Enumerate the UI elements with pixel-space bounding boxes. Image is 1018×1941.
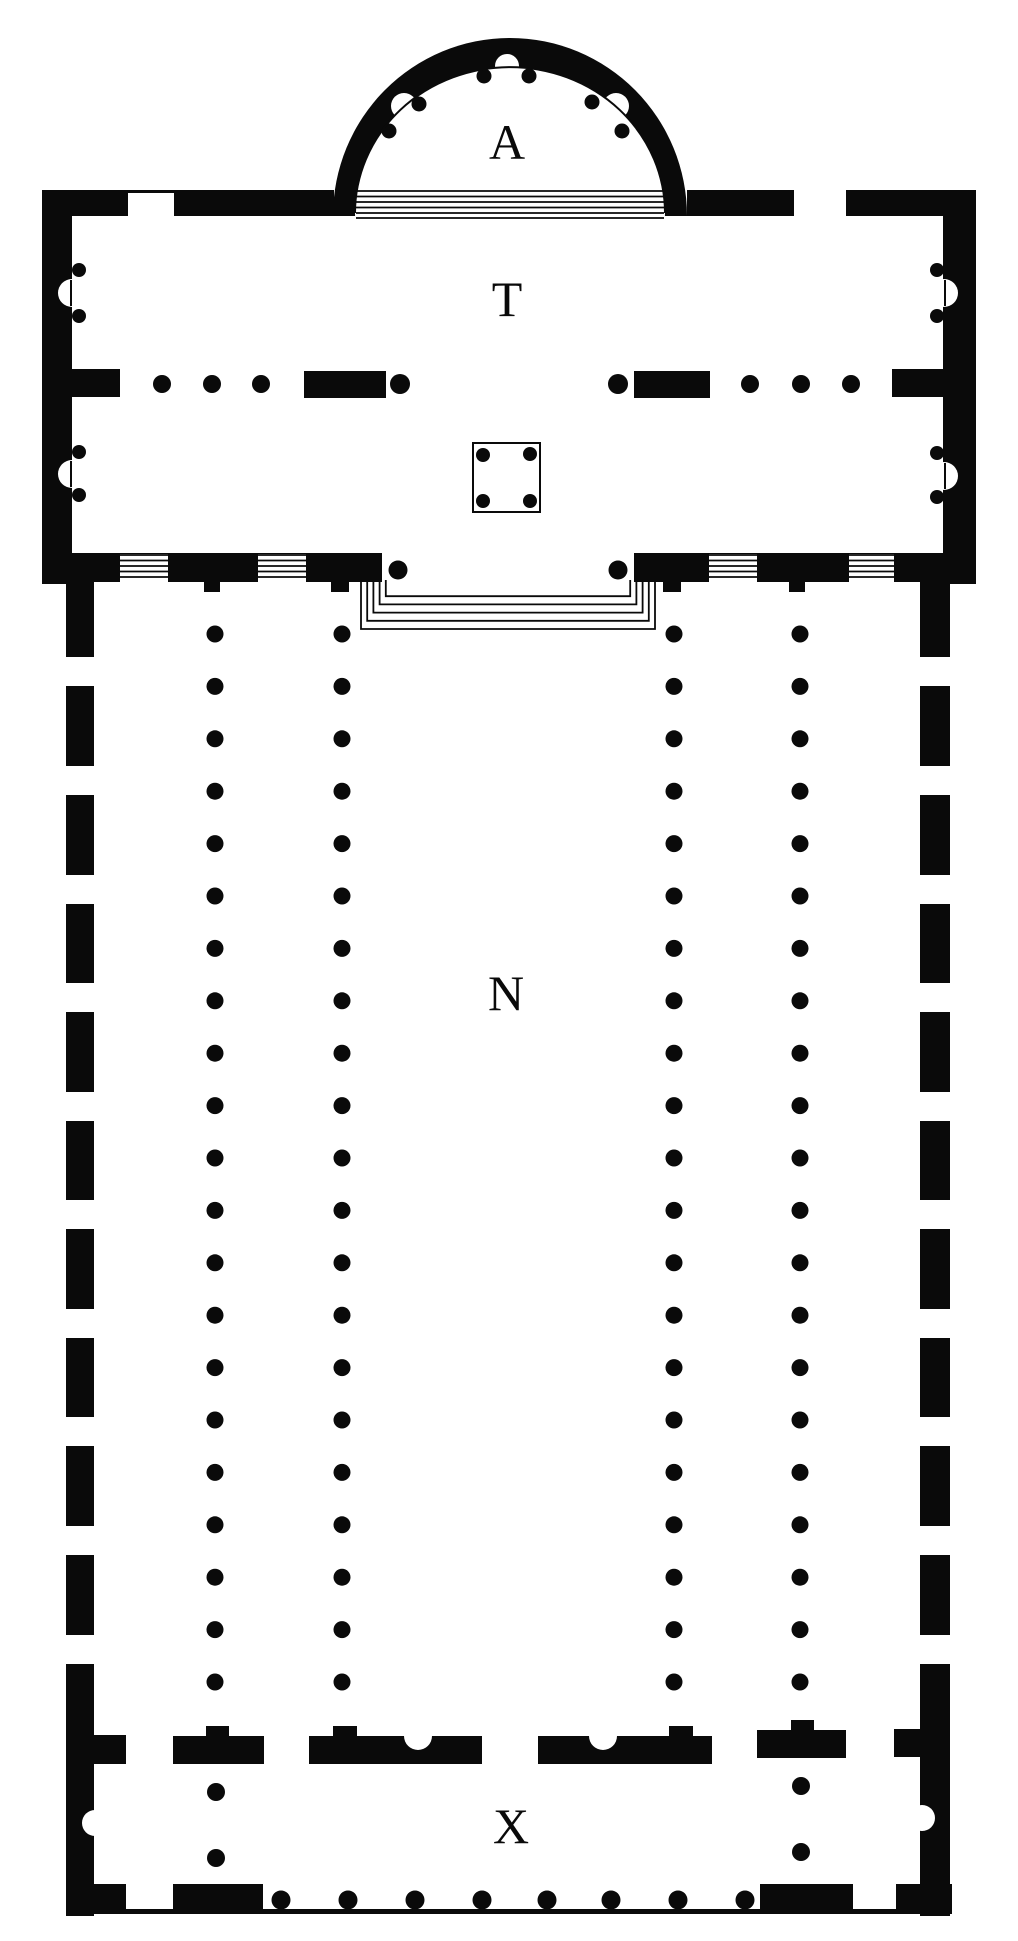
svg-text:N: N [488, 965, 524, 1021]
svg-text:A: A [489, 114, 525, 170]
svg-text:T: T [492, 271, 523, 327]
svg-text:X: X [493, 1798, 529, 1854]
